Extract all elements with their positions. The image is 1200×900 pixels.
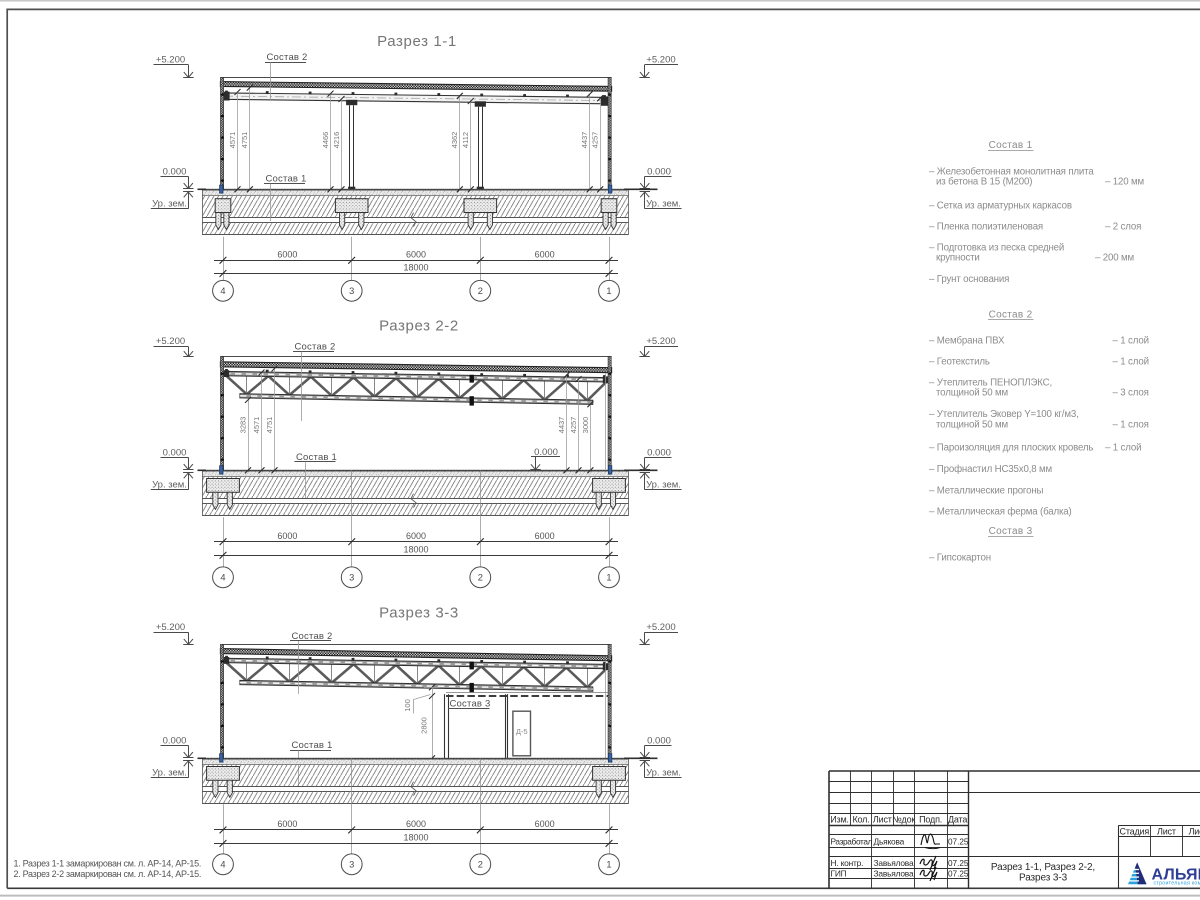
svg-text:– Пленка полиэтиленовая: – Пленка полиэтиленовая (929, 221, 1043, 232)
svg-text:– Металлические прогоны: – Металлические прогоны (929, 485, 1044, 496)
svg-text:2: 2 (478, 286, 483, 296)
svg-text:4257: 4257 (569, 417, 578, 434)
svg-text:– Сетка из арматурных каркасов: – Сетка из арматурных каркасов (929, 200, 1072, 211)
svg-text:2: 2 (478, 573, 483, 583)
svg-text:1: 1 (606, 286, 611, 296)
svg-text:Д-5: Д-5 (516, 727, 528, 736)
svg-text:– Гипсокартон: – Гипсокартон (929, 552, 991, 563)
svg-text:4437: 4437 (557, 417, 566, 434)
svg-text:Разработал: Разработал (831, 836, 873, 846)
svg-text:Ур. зем.: Ур. зем. (152, 480, 187, 491)
svg-text:4751: 4751 (240, 132, 249, 149)
svg-text:– Пароизоляция для плоских кро: – Пароизоляция для плоских кровель (929, 442, 1093, 453)
svg-text:Изм.: Изм. (830, 815, 848, 825)
svg-text:Подп.: Подп. (919, 815, 942, 825)
svg-text:– 120 мм: – 120 мм (1105, 176, 1144, 187)
svg-text:Разрез 3-3: Разрез 3-3 (1019, 873, 1068, 884)
svg-text:Разрез 1-1: Разрез 1-1 (377, 33, 457, 50)
svg-text:Лис: Лис (1189, 826, 1200, 836)
svg-text:из бетона В 15 (М200): из бетона В 15 (М200) (936, 176, 1032, 187)
svg-text:4437: 4437 (580, 132, 589, 149)
svg-text:6000: 6000 (535, 531, 555, 541)
svg-text:6000: 6000 (406, 531, 426, 541)
svg-text:Состав 2: Состав 2 (267, 52, 308, 63)
svg-text:1: 1 (606, 860, 611, 870)
svg-text:– 1 слой: – 1 слой (1113, 335, 1149, 346)
svg-text:2: 2 (478, 860, 483, 870)
svg-text:6000: 6000 (277, 250, 297, 260)
svg-text:18000: 18000 (403, 263, 428, 273)
svg-text:Ур. зем.: Ур. зем. (152, 199, 187, 210)
svg-text:– 1 слой: – 1 слой (1105, 442, 1141, 453)
svg-text:Кол.: Кол. (852, 815, 869, 825)
svg-text:4112: 4112 (461, 132, 470, 148)
svg-text:3283: 3283 (238, 417, 247, 434)
svg-text:Н. контр.: Н. контр. (831, 858, 864, 868)
svg-text:Ур. зем.: Ур. зем. (646, 199, 681, 210)
svg-text:– 1 слоя: – 1 слоя (1113, 419, 1149, 430)
svg-text:Лист: Лист (1157, 826, 1176, 836)
svg-text:+5.200: +5.200 (156, 54, 185, 65)
svg-text:07.25: 07.25 (948, 859, 969, 868)
svg-text:+5.200: +5.200 (156, 622, 185, 633)
svg-text:6000: 6000 (406, 250, 426, 260)
svg-text:2. Разрез 2-2 замаркирован см.: 2. Разрез 2-2 замаркирован см. л. АР-14,… (14, 869, 202, 879)
svg-text:6000: 6000 (535, 250, 555, 260)
svg-text:– Профнастил НС35х0,8 мм: – Профнастил НС35х0,8 мм (929, 464, 1052, 475)
svg-text:Стадия: Стадия (1120, 826, 1150, 836)
svg-text:4571: 4571 (228, 132, 237, 149)
svg-text:Состав 3: Состав 3 (989, 526, 1033, 537)
svg-text:– Мембрана ПВХ: – Мембрана ПВХ (929, 335, 1005, 346)
svg-text:Ур. зем.: Ур. зем. (646, 768, 681, 779)
svg-text:– Геотекстиль: – Геотекстиль (929, 356, 990, 367)
svg-text:– 3 слоя: – 3 слоя (1113, 387, 1149, 398)
svg-text:4: 4 (220, 573, 225, 583)
svg-text:4466: 4466 (321, 132, 330, 149)
svg-text:07.25: 07.25 (948, 869, 969, 878)
svg-text:Дьякова: Дьякова (874, 836, 905, 846)
svg-text:Состав 2: Состав 2 (989, 309, 1033, 320)
svg-text:Состав 3: Состав 3 (450, 698, 491, 709)
svg-text:6000: 6000 (277, 819, 297, 829)
svg-text:Состав 2: Состав 2 (295, 341, 336, 352)
svg-text:18000: 18000 (403, 545, 428, 555)
svg-text:+5.200: +5.200 (156, 336, 185, 347)
svg-text:Завьялова: Завьялова (874, 868, 914, 878)
svg-text:толщиной 50 мм: толщиной 50 мм (936, 387, 1008, 398)
svg-text:18000: 18000 (403, 833, 428, 843)
svg-text:3: 3 (349, 860, 354, 870)
svg-text:3: 3 (349, 573, 354, 583)
svg-text:6000: 6000 (277, 531, 297, 541)
svg-text:№док: №док (892, 815, 915, 825)
svg-text:4257: 4257 (591, 132, 600, 149)
svg-text:строительная комп: строительная комп (1154, 881, 1200, 887)
svg-text:Ур. зем.: Ур. зем. (646, 480, 681, 491)
svg-text:– 2 слоя: – 2 слоя (1105, 221, 1141, 232)
svg-text:1. Разрез 1-1 замаркирован см.: 1. Разрез 1-1 замаркирован см. л. АР-14,… (14, 858, 202, 868)
svg-text:4: 4 (220, 286, 225, 296)
svg-text:3: 3 (349, 286, 354, 296)
svg-text:– Металлическая ферма (балка): – Металлическая ферма (балка) (929, 506, 1072, 517)
svg-text:Состав 1: Состав 1 (989, 140, 1033, 151)
svg-text:07.25: 07.25 (948, 837, 969, 846)
svg-text:100: 100 (403, 699, 412, 712)
svg-text:Завьялова: Завьялова (874, 858, 914, 868)
svg-text:Ур. зем.: Ур. зем. (152, 768, 187, 779)
svg-text:Состав 1: Состав 1 (266, 173, 307, 184)
svg-text:2800: 2800 (420, 717, 429, 734)
svg-text:6000: 6000 (535, 819, 555, 829)
svg-text:4362: 4362 (450, 132, 459, 149)
svg-text:4: 4 (220, 860, 225, 870)
svg-text:Разрез 1-1, Разрез 2-2,: Разрез 1-1, Разрез 2-2, (991, 862, 1095, 873)
svg-text:– 1 слой: – 1 слой (1113, 356, 1149, 367)
svg-text:крупности: крупности (936, 252, 980, 263)
svg-text:Разрез 3-3: Разрез 3-3 (379, 605, 459, 622)
svg-text:ГИП: ГИП (831, 868, 847, 878)
svg-text:4571: 4571 (252, 417, 261, 434)
svg-text:Разрез 2-2: Разрез 2-2 (379, 318, 459, 335)
svg-text:6000: 6000 (406, 819, 426, 829)
svg-text:1: 1 (606, 573, 611, 583)
svg-text:Лист: Лист (873, 815, 892, 825)
svg-text:+5.200: +5.200 (646, 336, 675, 347)
svg-text:– 200 мм: – 200 мм (1095, 252, 1134, 263)
svg-text:– Утеплитель Эковер Y=100 кг/м: – Утеплитель Эковер Y=100 кг/м3, (929, 409, 1079, 420)
svg-text:Дата: Дата (948, 815, 967, 825)
svg-text:3000: 3000 (581, 417, 590, 434)
svg-text:– Грунт основания: – Грунт основания (929, 274, 1009, 285)
svg-text:4751: 4751 (265, 417, 274, 434)
svg-text:4216: 4216 (332, 132, 341, 149)
svg-text:Состав 1: Состав 1 (292, 740, 333, 751)
svg-text:+5.200: +5.200 (646, 54, 675, 65)
svg-text:+5.200: +5.200 (646, 622, 675, 633)
svg-text:толщиной 50 мм: толщиной 50 мм (936, 419, 1008, 430)
